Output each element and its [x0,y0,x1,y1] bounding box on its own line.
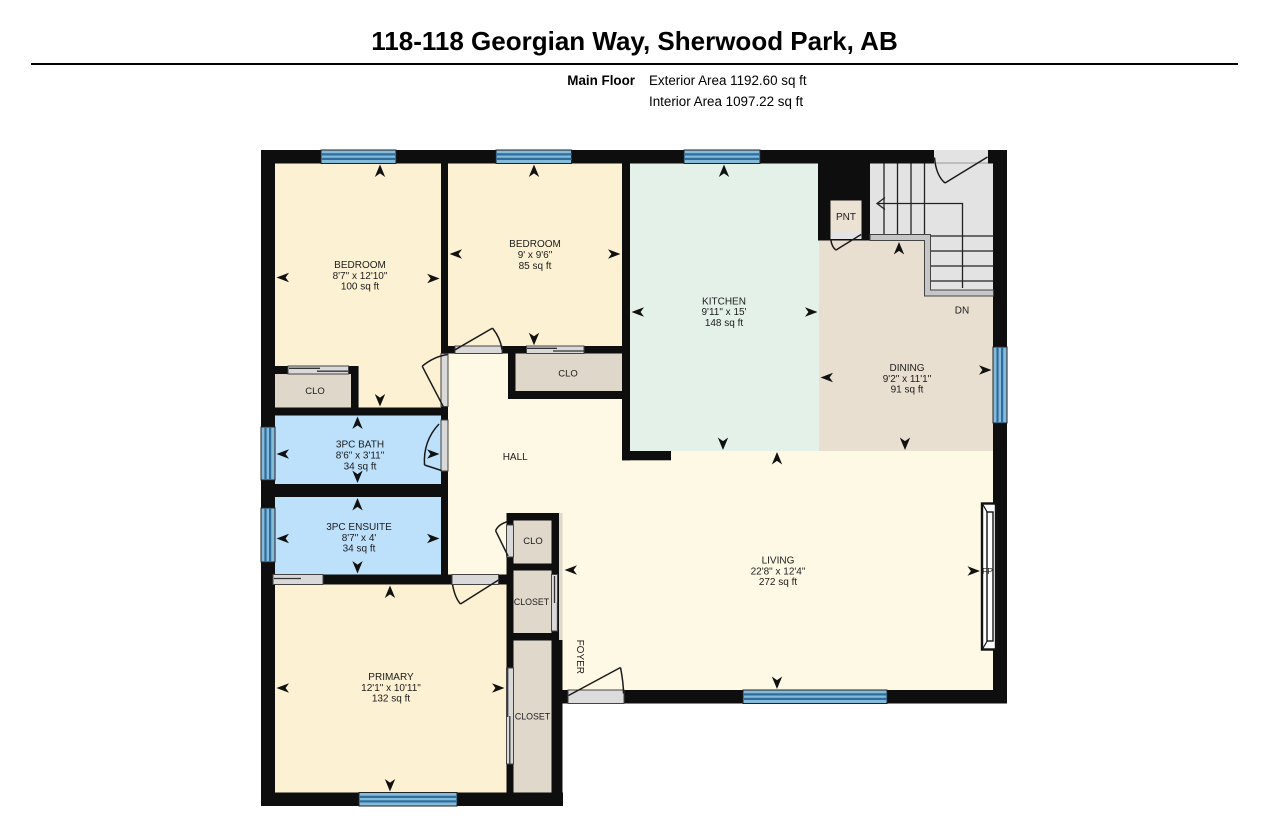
svg-text:BEDROOM: BEDROOM [509,239,561,250]
svg-text:CLOSET: CLOSET [514,597,550,607]
svg-text:100 sq ft: 100 sq ft [341,282,380,293]
svg-text:CLO: CLO [558,369,578,380]
svg-text:22'8" x 12'4": 22'8" x 12'4" [751,566,806,577]
svg-text:3PC ENSUITE: 3PC ENSUITE [326,522,392,533]
svg-text:8'6" x 3'11": 8'6" x 3'11" [336,451,385,462]
svg-text:9'11" x 15': 9'11" x 15' [702,307,747,318]
svg-text:34 sq ft: 34 sq ft [344,461,377,472]
svg-text:9'2" x 11'1": 9'2" x 11'1" [883,374,932,385]
svg-text:KITCHEN: KITCHEN [702,296,746,307]
svg-text:272 sq ft: 272 sq ft [759,577,798,588]
svg-text:CLO: CLO [523,536,543,547]
svg-text:132 sq ft: 132 sq ft [372,694,411,705]
svg-text:PRIMARY: PRIMARY [368,672,414,683]
svg-text:HALL: HALL [503,452,528,463]
svg-text:CLOSET: CLOSET [515,712,551,722]
svg-text:3PC BATH: 3PC BATH [336,440,384,451]
svg-text:FOYER: FOYER [574,640,585,674]
svg-text:12'1" x 10'11": 12'1" x 10'11" [361,683,421,694]
svg-text:DINING: DINING [890,363,925,374]
svg-text:34 sq ft: 34 sq ft [343,544,376,555]
svg-text:8'7" x 4': 8'7" x 4' [342,533,377,544]
svg-text:91 sq ft: 91 sq ft [891,385,924,396]
svg-text:LIVING: LIVING [762,556,795,567]
svg-text:CLO: CLO [305,386,325,397]
svg-text:9' x 9'6": 9' x 9'6" [518,250,553,261]
svg-text:PNT: PNT [836,212,856,223]
svg-text:85 sq ft: 85 sq ft [519,261,552,272]
svg-text:DN: DN [955,306,969,317]
svg-text:FP: FP [982,566,993,576]
svg-text:148 sq ft: 148 sq ft [705,318,744,329]
svg-text:BEDROOM: BEDROOM [334,260,386,271]
svg-text:8'7" x 12'10": 8'7" x 12'10" [333,271,388,282]
